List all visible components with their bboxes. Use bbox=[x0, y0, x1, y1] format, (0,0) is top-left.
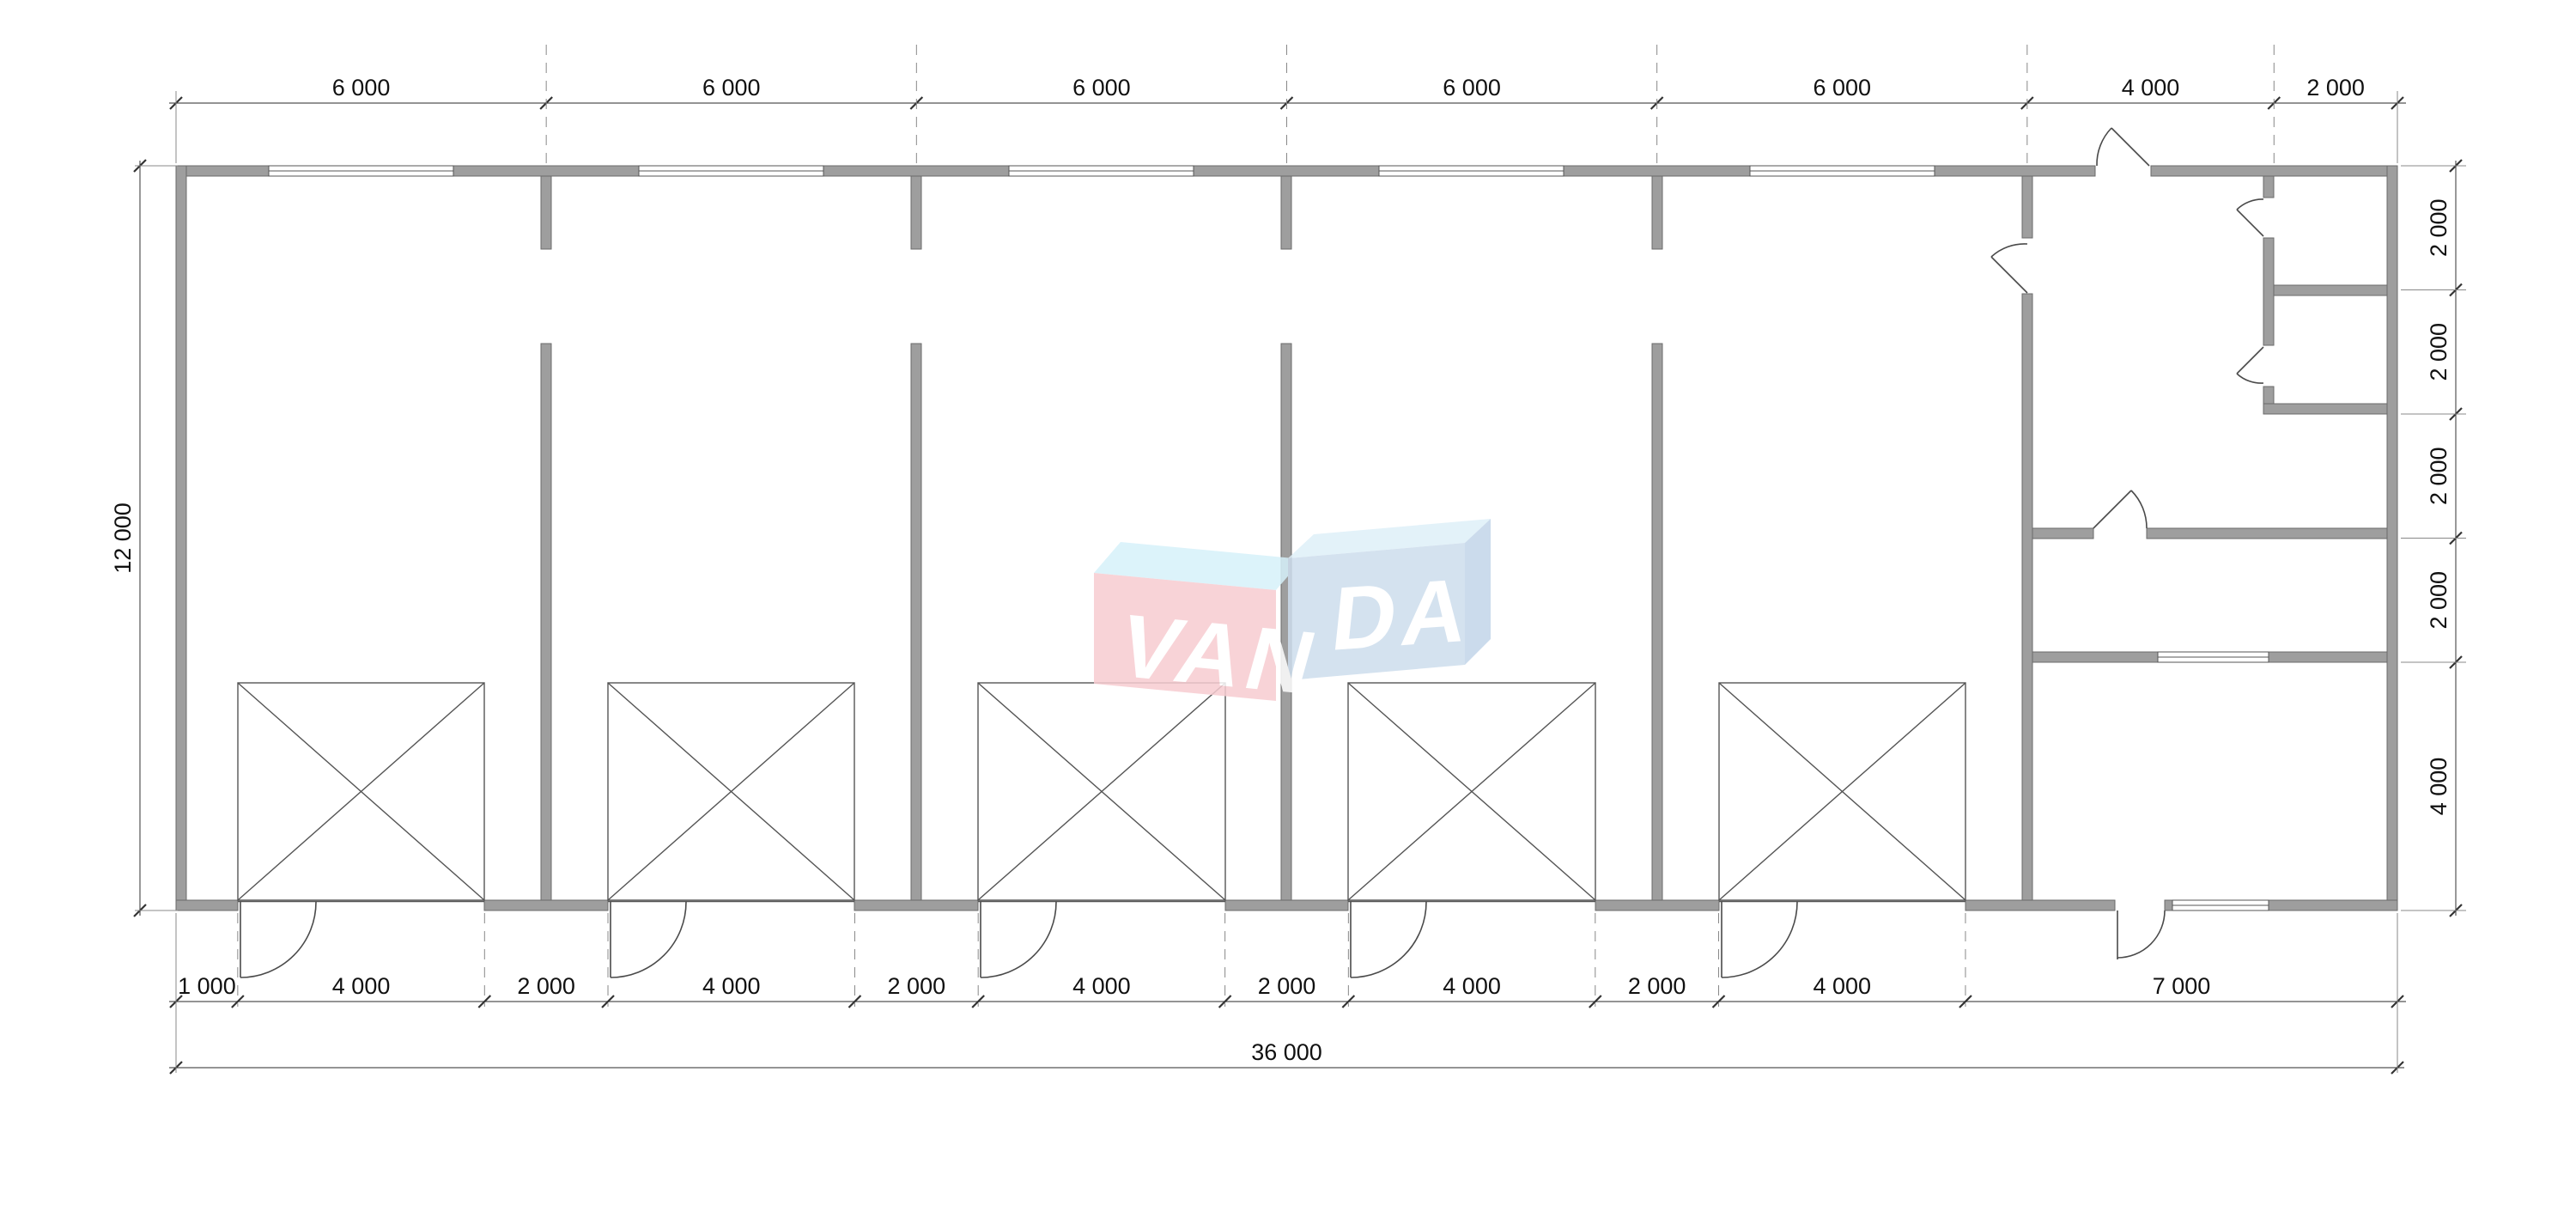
bottom-wall-segment bbox=[854, 900, 978, 910]
dim-label: 4 000 bbox=[702, 973, 761, 999]
bay-wall-stub bbox=[911, 176, 921, 249]
dim-label: 4 000 bbox=[1813, 973, 1871, 999]
bay-wall bbox=[541, 344, 551, 900]
top-window bbox=[639, 166, 823, 176]
bottom-wall-segment bbox=[1965, 900, 2115, 910]
windows bbox=[269, 166, 2269, 910]
bay-wall-stub bbox=[541, 176, 551, 249]
dim-label: 2 000 bbox=[888, 973, 946, 999]
mid-room-door bbox=[2093, 490, 2147, 528]
bottom-wall-segment bbox=[2165, 900, 2172, 910]
section-wall bbox=[2022, 294, 2032, 900]
rooms-wall-stub bbox=[2263, 176, 2274, 198]
dim-label: 4 000 bbox=[1443, 973, 1501, 999]
low-wall-segment bbox=[2032, 652, 2158, 662]
dimensions-left: 12 000 bbox=[110, 160, 178, 916]
bay-wall-stub bbox=[1281, 176, 1291, 249]
dim-label: 2 000 bbox=[2306, 75, 2365, 100]
bay-wall bbox=[1652, 344, 1662, 900]
garage-pedestrian-door bbox=[981, 902, 1056, 977]
back-door bbox=[2117, 910, 2165, 959]
dim-label: 12 000 bbox=[110, 502, 136, 574]
watermark: VAN DA bbox=[1094, 519, 1491, 713]
dim-label: 4 000 bbox=[2122, 75, 2180, 100]
dim-label: 2 000 bbox=[1628, 973, 1686, 999]
dim-label: 6 000 bbox=[1813, 75, 1871, 100]
bay-wall bbox=[911, 344, 921, 900]
floor-plan-page: 6 0006 0006 0006 0006 0004 0002 000 1 00… bbox=[0, 0, 2576, 1224]
dim-label: 2 000 bbox=[2426, 571, 2451, 630]
garage-door-panel bbox=[238, 683, 484, 900]
bottom-wall-segment bbox=[1595, 900, 1719, 910]
dim-label: 2 000 bbox=[2426, 447, 2451, 505]
garage-door-panel bbox=[1719, 683, 1965, 900]
dim-label: 6 000 bbox=[1072, 75, 1131, 100]
watermark-text-van: VAN bbox=[1108, 597, 1331, 714]
dim-label: 2 000 bbox=[1258, 973, 1316, 999]
right-outer-wall bbox=[2387, 166, 2397, 910]
dim-label: 36 000 bbox=[1251, 1039, 1322, 1065]
dimensions-top: 6 0006 0006 0006 0006 0004 0002 000 bbox=[169, 45, 2406, 163]
garage-pedestrian-door bbox=[1722, 902, 1797, 977]
top-window bbox=[269, 166, 453, 176]
dim-label: 4 000 bbox=[2426, 758, 2451, 816]
garage-pedestrian-door bbox=[1351, 902, 1426, 977]
garage-pedestrian-door bbox=[611, 902, 686, 977]
bottom-wall-segment bbox=[2269, 900, 2397, 910]
low-wall-segment bbox=[2269, 652, 2387, 662]
room-b-door bbox=[2237, 347, 2263, 383]
dim-label: 6 000 bbox=[702, 75, 761, 100]
bottom-window bbox=[2172, 900, 2269, 910]
top-wall-segment bbox=[1564, 166, 1750, 176]
top-wall-segment bbox=[823, 166, 1009, 176]
dim-label: 6 000 bbox=[332, 75, 391, 100]
garage-door-panel bbox=[978, 683, 1225, 900]
dim-label: 2 000 bbox=[517, 973, 575, 999]
room-a-door bbox=[2237, 199, 2263, 236]
dim-label: 2 000 bbox=[2426, 323, 2451, 381]
room-divider-wall bbox=[2274, 285, 2387, 295]
top-wall-segment bbox=[2151, 166, 2397, 176]
room-floor-wall bbox=[2263, 404, 2387, 414]
dimensions-right: 2 0002 0002 0002 0004 000 bbox=[2401, 160, 2466, 916]
dim-label: 1 000 bbox=[178, 973, 236, 999]
bottom-wall-segment bbox=[176, 900, 238, 910]
dim-label: 7 000 bbox=[2153, 973, 2211, 999]
floor-plan-svg: 6 0006 0006 0006 0006 0004 0002 000 1 00… bbox=[0, 0, 2576, 1224]
watermark-text-da: DA bbox=[1327, 559, 1477, 670]
mid-wall-segment bbox=[2147, 528, 2387, 539]
dim-label: 4 000 bbox=[332, 973, 391, 999]
interior-window bbox=[2158, 652, 2269, 662]
dim-label: 4 000 bbox=[1072, 973, 1131, 999]
hall-door bbox=[1991, 244, 2027, 293]
rooms-wall bbox=[2263, 238, 2274, 345]
bottom-wall-segment bbox=[1225, 900, 1348, 910]
section-wall-stub bbox=[2022, 176, 2032, 238]
garage-door-panels bbox=[238, 683, 1965, 900]
top-window bbox=[1009, 166, 1194, 176]
mid-wall-segment bbox=[2032, 528, 2093, 539]
garage-door-panel bbox=[608, 683, 854, 900]
garage-pedestrian-door bbox=[240, 902, 316, 977]
bottom-wall-segment bbox=[484, 900, 608, 910]
top-wall-segment bbox=[453, 166, 639, 176]
top-window bbox=[1379, 166, 1564, 176]
dimensions-bottom: 1 0004 0002 0004 0002 0004 0002 0004 000… bbox=[169, 913, 2406, 1008]
dim-label: 2 000 bbox=[2426, 198, 2451, 257]
left-outer-wall bbox=[176, 166, 186, 910]
entrance-door bbox=[2097, 128, 2149, 166]
garage-door-panel bbox=[1348, 683, 1595, 900]
bay-wall-stub bbox=[1652, 176, 1662, 249]
top-wall-segment bbox=[1935, 166, 2095, 176]
top-window bbox=[1750, 166, 1935, 176]
top-wall-segment bbox=[1194, 166, 1379, 176]
dim-label: 6 000 bbox=[1443, 75, 1501, 100]
top-wall-segment bbox=[176, 166, 269, 176]
